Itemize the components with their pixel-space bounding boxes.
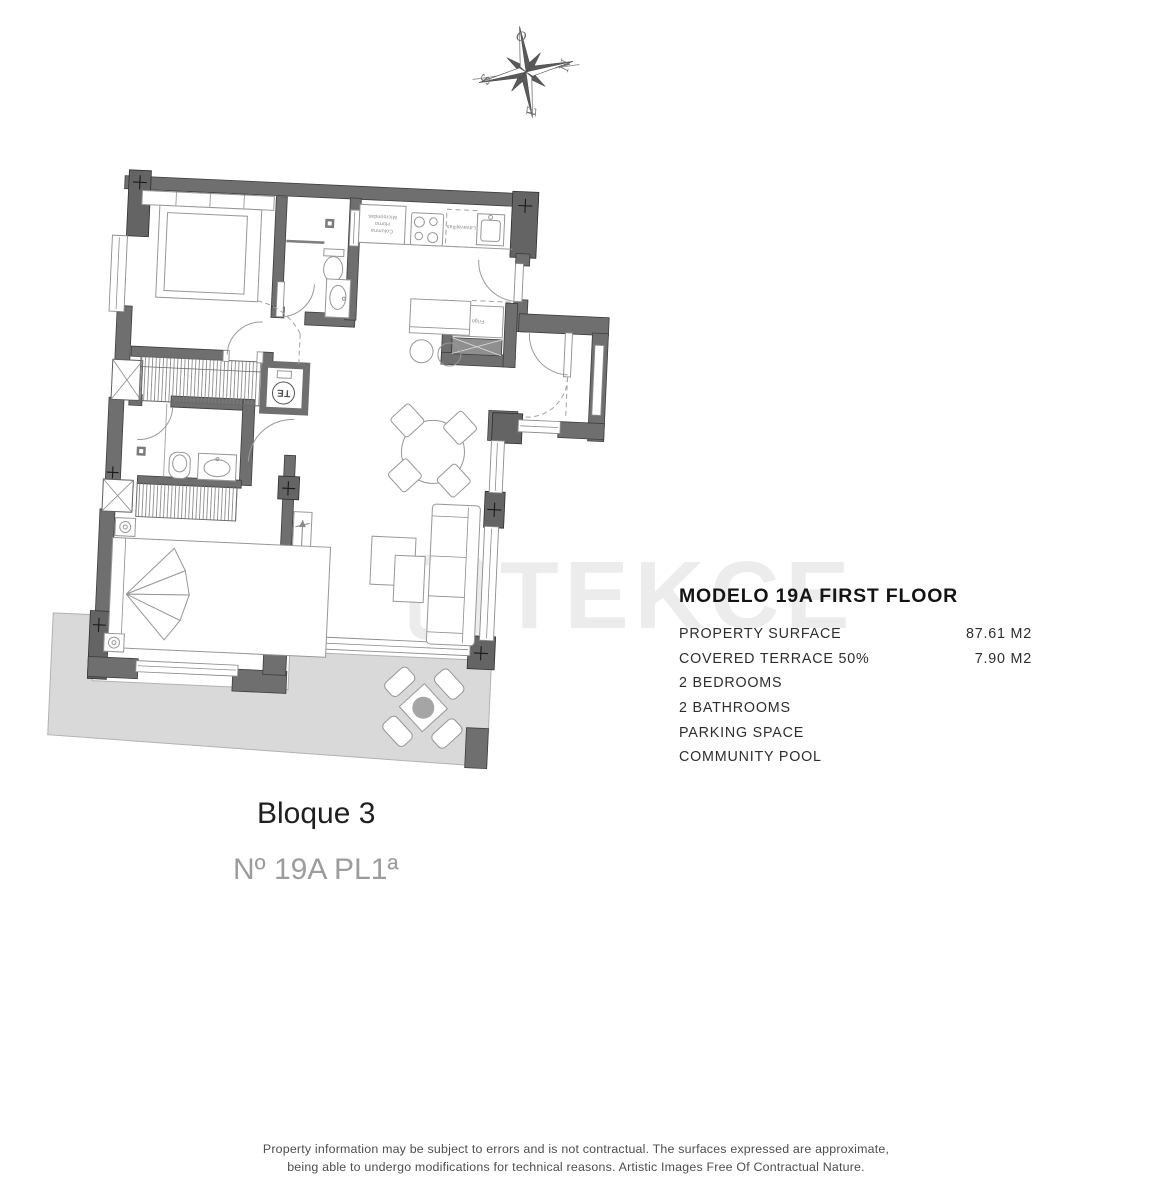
spec-row-pool: COMMUNITY POOL xyxy=(679,745,1032,770)
door-kitchen xyxy=(477,260,524,302)
spec-label: COVERED TERRACE 50% xyxy=(679,647,870,672)
stool-1 xyxy=(410,339,434,363)
cooktop xyxy=(410,213,443,246)
compass-south-label: S xyxy=(478,72,495,87)
nightstand-1 xyxy=(115,518,136,537)
disclaimer-line-1: Property information may be subject to e… xyxy=(0,1141,1152,1159)
info-panel: MODELO 19A FIRST FLOOR PROPERTY SURFACE … xyxy=(679,585,1032,770)
column-label: Columna xyxy=(371,227,393,234)
spec-label: 2 BEDROOMS xyxy=(679,671,782,696)
oven-column: Columna Horno Microondas xyxy=(358,204,406,244)
spec-row-parking: PARKING SPACE xyxy=(679,721,1032,746)
window-entry xyxy=(518,420,561,434)
compass-north-label: N xyxy=(557,58,575,74)
spec-value: 87.61 M2 xyxy=(966,622,1032,647)
spec-label: PROPERTY SURFACE xyxy=(679,622,841,647)
sink-1 xyxy=(325,279,351,318)
spec-value: 7.90 M2 xyxy=(975,647,1032,672)
door-entry-dashed xyxy=(526,375,568,419)
door-bathroom2 xyxy=(137,405,173,441)
nightstand-2 xyxy=(104,633,125,652)
sofa xyxy=(426,504,480,646)
compass-west-label: O xyxy=(516,30,527,45)
bedroom-1 xyxy=(138,190,275,302)
sink-2 xyxy=(197,453,236,481)
bathroom-2 xyxy=(136,402,239,480)
shaft-1 xyxy=(111,359,143,400)
compass-rose-icon: O N S E xyxy=(466,19,586,125)
window-living-east-1 xyxy=(489,441,504,494)
floor-plan-page: TEKCE xyxy=(0,0,1152,1200)
spec-row-bedrooms: 2 BEDROOMS xyxy=(679,671,1032,696)
dishwasher: Lavavajillas xyxy=(445,209,478,247)
spec-label: COMMUNITY POOL xyxy=(679,745,822,770)
spec-label: PARKING SPACE xyxy=(679,721,804,746)
door-bedroom1 xyxy=(223,320,265,363)
spec-label: 2 BATHROOMS xyxy=(679,696,791,721)
disclaimer: Property information may be subject to e… xyxy=(0,1141,1152,1176)
coffee-table xyxy=(369,536,426,602)
compass-east-label: E xyxy=(525,105,541,117)
unit-caption: Nº 19A PL1ª xyxy=(233,853,399,887)
dishwasher-label: Lavavajillas xyxy=(446,223,476,230)
oven-label: Horno xyxy=(375,220,390,227)
window-living-east-2 xyxy=(479,526,498,641)
dining-table xyxy=(386,402,478,499)
window-bedroom2-south xyxy=(136,661,238,677)
living-dining xyxy=(367,401,485,646)
shaft-2 xyxy=(102,479,133,512)
wardrobe-2 xyxy=(136,482,237,521)
door-entry xyxy=(528,331,573,377)
water-heater-closet: TE xyxy=(263,364,307,412)
spec-row-terrace: COVERED TERRACE 50% 7.90 M2 xyxy=(679,647,1032,672)
kitchen-sink xyxy=(476,214,504,246)
toilet-2 xyxy=(169,452,191,479)
water-heater-label: TE xyxy=(276,387,290,399)
window-bedroom1 xyxy=(109,235,127,312)
plan-title: MODELO 19A FIRST FLOOR xyxy=(679,585,1032,608)
disclaimer-line-2: being able to undergo modifications for … xyxy=(0,1159,1152,1177)
fridge-label: Frigo xyxy=(471,317,484,324)
wardrobe-1 xyxy=(139,357,265,407)
spec-row-surface: PROPERTY SURFACE 87.61 M2 xyxy=(679,622,1032,647)
spec-row-bathrooms: 2 BATHROOMS xyxy=(679,696,1032,721)
block-caption: Bloque 3 xyxy=(257,797,375,831)
toilet-1 xyxy=(323,249,344,282)
